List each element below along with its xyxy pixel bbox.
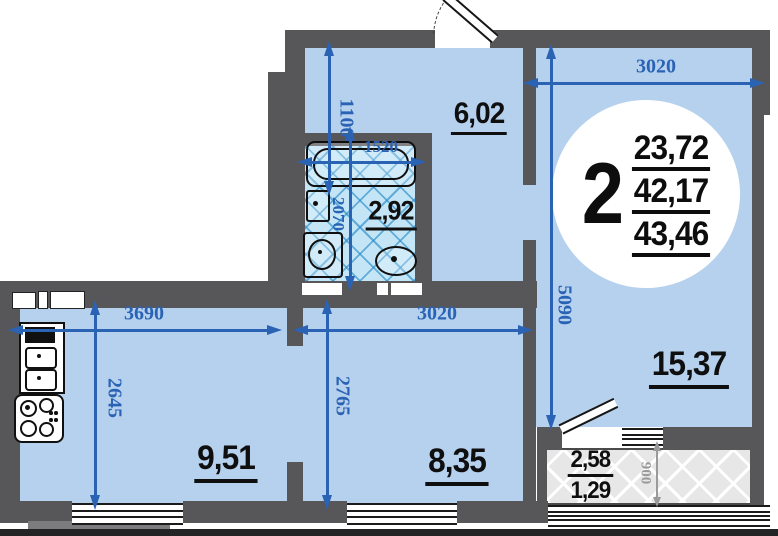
area-label-kitchen: 9,51 xyxy=(192,439,260,483)
wall xyxy=(752,110,764,443)
dimension-balcony-depth-line xyxy=(656,450,658,498)
room-count: 2 xyxy=(582,151,624,237)
vent-shaft xyxy=(50,291,85,309)
area-label-bedroom: 8,35 xyxy=(423,442,491,486)
dimension-room-depth-line xyxy=(326,313,329,496)
washbasin-bowl xyxy=(308,239,336,270)
toilet-drain xyxy=(391,256,397,262)
area-value: 2,92 xyxy=(366,196,417,231)
area-value: 8,35 xyxy=(425,442,488,486)
area-label-balcony: 2,58 1,29 xyxy=(566,446,615,505)
wall xyxy=(752,30,770,115)
dimension-bath-width-line xyxy=(311,161,412,164)
dimension-bath-depth: 2070 xyxy=(328,197,348,231)
wall xyxy=(0,501,72,523)
vent-shaft xyxy=(12,292,36,309)
dimension-bath-width: 1520 xyxy=(364,137,398,157)
dimension-kitchen-width-line xyxy=(22,329,268,332)
wall xyxy=(663,427,753,450)
wall xyxy=(750,427,764,507)
kitchen-window xyxy=(72,503,183,525)
kitchen-bedroom-opening xyxy=(287,346,303,462)
dimension-kitchen-width: 3690 xyxy=(124,303,164,326)
balcony-doorway xyxy=(562,428,622,448)
living-area-value: 23,72 xyxy=(632,131,710,171)
usable-area-value: 42,17 xyxy=(632,174,710,214)
balcony-area-full: 2,58 xyxy=(568,446,613,477)
wall xyxy=(537,443,547,505)
balcony-area-reduced: 1,29 xyxy=(570,477,610,505)
wall xyxy=(268,72,305,284)
dimension-bath-depth-line xyxy=(349,140,352,277)
washbasin-drain xyxy=(318,250,322,254)
dimension-living-width: 3020 xyxy=(636,56,676,79)
dimension-kitchen-depth: 2645 xyxy=(103,378,126,418)
dimension-living-depth-line xyxy=(550,58,553,416)
stove-icon xyxy=(14,394,64,443)
wall xyxy=(285,30,435,48)
vent-shaft xyxy=(38,291,48,309)
area-value: 6,02 xyxy=(451,97,507,135)
dimension-hall-depth: 1100 xyxy=(335,99,358,138)
area-value: 15,37 xyxy=(649,345,729,389)
dimension-balcony-depth: 900 xyxy=(637,462,654,485)
lower-floor-slab xyxy=(0,529,778,536)
balcony-railing xyxy=(548,505,770,527)
dimension-room-width: 3020 xyxy=(417,303,457,326)
area-label-living: 15,37 xyxy=(646,345,732,389)
dimension-room-depth: 2765 xyxy=(331,376,354,416)
floor-plan: 1100 1520 2070 3020 5090 3690 2645 3020 … xyxy=(0,0,778,536)
wall xyxy=(285,30,305,78)
dimension-kitchen-depth-line xyxy=(94,314,97,496)
total-area-value: 43,46 xyxy=(632,217,710,257)
wall xyxy=(457,501,548,523)
dimension-living-depth: 5090 xyxy=(553,285,576,325)
area-value: 9,51 xyxy=(194,439,257,483)
bedroom-window xyxy=(347,503,457,525)
wall-niche xyxy=(377,283,388,295)
area-label-hall: 6,02 xyxy=(449,97,509,135)
sink-faucet xyxy=(313,201,318,206)
unit-info-badge: 2 23,72 42,17 43,46 xyxy=(552,100,740,288)
wall xyxy=(523,48,536,185)
kitchen-sink-icon xyxy=(19,322,65,394)
area-label-bathroom: 2,92 xyxy=(364,196,419,231)
wall xyxy=(287,462,303,503)
wall xyxy=(490,30,770,48)
wall xyxy=(523,240,536,505)
dimension-living-width-line xyxy=(537,82,751,85)
wall-niche xyxy=(391,283,422,295)
wall xyxy=(287,281,303,346)
bathroom-doorway xyxy=(302,283,342,295)
dimension-room-width-line xyxy=(307,329,519,332)
hall-living-doorway xyxy=(523,185,536,240)
